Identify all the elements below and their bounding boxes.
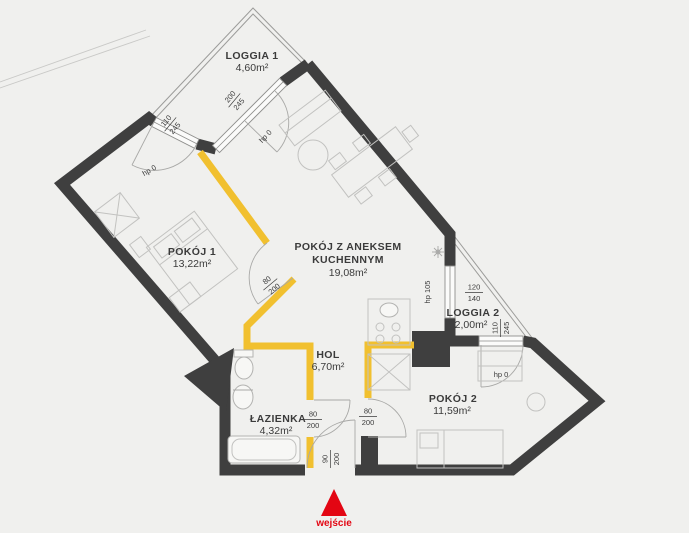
svg-text:80: 80 bbox=[309, 410, 317, 419]
floor-plan: LOGGIA 1 4,60m² POKÓJ 1 13,22m² POKÓJ Z … bbox=[0, 0, 689, 533]
bathroom-fixtures bbox=[228, 350, 300, 463]
svg-text:200: 200 bbox=[307, 421, 320, 430]
svg-text:LOGGIA 1: LOGGIA 1 bbox=[226, 50, 279, 62]
kitchen-counter bbox=[368, 299, 410, 345]
svg-text:200: 200 bbox=[362, 418, 375, 427]
svg-text:hp 105: hp 105 bbox=[423, 281, 432, 304]
dim-pokoj2-balcony-door-sill: hp 0 bbox=[494, 370, 509, 379]
pokoj2-loggia2-window bbox=[479, 336, 523, 346]
room-label-salon: POKÓJ Z ANEKSEM KUCHENNYM 19,08m² bbox=[294, 240, 401, 279]
svg-text:ŁAZIENKA: ŁAZIENKA bbox=[250, 413, 306, 425]
svg-text:4,60m²: 4,60m² bbox=[236, 62, 269, 74]
svg-text:6,70m²: 6,70m² bbox=[312, 361, 345, 373]
svg-text:80: 80 bbox=[364, 407, 372, 416]
dim-loggia1-window: 200 245 bbox=[221, 87, 248, 114]
entrance-arrow-icon bbox=[321, 489, 347, 516]
svg-text:POKÓJ 1: POKÓJ 1 bbox=[168, 245, 216, 258]
dim-pokoj2-door: 80 200 bbox=[359, 407, 377, 428]
svg-text:13,22m²: 13,22m² bbox=[173, 258, 212, 270]
svg-text:11,59m²: 11,59m² bbox=[433, 405, 471, 417]
room-label-pokoj1: POKÓJ 1 13,22m² bbox=[168, 245, 216, 270]
chimney-block bbox=[412, 331, 450, 367]
kitchen-sink bbox=[380, 303, 398, 317]
bathtub bbox=[228, 436, 300, 463]
svg-text:LOGGIA 2: LOGGIA 2 bbox=[447, 307, 500, 319]
pokoj2-bed bbox=[417, 430, 503, 468]
toilet bbox=[234, 350, 253, 379]
dim-kitchen-window-sill: hp 105 bbox=[423, 281, 432, 304]
room-label-lazienka: ŁAZIENKA 4,32m² bbox=[250, 413, 306, 437]
svg-text:KUCHENNYM: KUCHENNYM bbox=[312, 254, 384, 266]
dim-pokoj2-balcony-door: 110 245 bbox=[491, 319, 512, 337]
dim-pokoj1-balcony-door-sill: hp 0 bbox=[141, 163, 158, 178]
loggia1-window bbox=[212, 78, 286, 152]
salon-sofa bbox=[279, 90, 341, 146]
loggia1-railing bbox=[149, 8, 308, 122]
vent-symbol bbox=[432, 246, 444, 258]
svg-text:110: 110 bbox=[491, 322, 500, 334]
floor-plan-drawing: LOGGIA 1 4,60m² POKÓJ 1 13,22m² POKÓJ Z … bbox=[0, 0, 689, 533]
svg-text:200: 200 bbox=[332, 453, 341, 466]
pokoj2-table bbox=[527, 393, 545, 411]
hall-wardrobe bbox=[368, 354, 410, 390]
wall-below-pokoj2-door bbox=[361, 436, 378, 472]
svg-text:hp 0: hp 0 bbox=[494, 370, 509, 379]
dim-kitchen-window: 120 140 bbox=[465, 283, 483, 304]
svg-text:19,08m²: 19,08m² bbox=[329, 267, 368, 279]
svg-text:hp 0: hp 0 bbox=[257, 128, 274, 145]
room-label-pokoj2: POKÓJ 2 11,59m² bbox=[429, 392, 477, 417]
washbasin bbox=[233, 385, 253, 409]
neighbor-railing-lines bbox=[0, 30, 150, 88]
dim-entrance-door: 90 200 bbox=[321, 450, 342, 468]
svg-text:4,32m²: 4,32m² bbox=[260, 425, 293, 437]
partition-wall-pokoj1 bbox=[200, 152, 267, 243]
svg-text:POKÓJ 2: POKÓJ 2 bbox=[429, 392, 477, 405]
salon-rug bbox=[298, 140, 328, 170]
partition-wall-bathroom bbox=[247, 279, 310, 400]
svg-text:90: 90 bbox=[321, 455, 330, 463]
svg-text:120: 120 bbox=[468, 283, 481, 292]
svg-text:140: 140 bbox=[468, 294, 481, 303]
room-label-loggia1: LOGGIA 1 4,60m² bbox=[226, 50, 279, 74]
entrance-marker: wejście bbox=[315, 489, 352, 529]
kitchen-stove bbox=[376, 323, 400, 343]
svg-text:2,00m²: 2,00m² bbox=[455, 319, 488, 331]
svg-text:POKÓJ Z ANEKSEM: POKÓJ Z ANEKSEM bbox=[294, 240, 401, 253]
svg-text:245: 245 bbox=[502, 322, 511, 335]
entrance-label: wejście bbox=[315, 518, 352, 529]
svg-text:HOL: HOL bbox=[316, 349, 340, 361]
svg-text:hp 0: hp 0 bbox=[141, 163, 158, 178]
room-label-hol: HOL 6,70m² bbox=[312, 349, 345, 373]
lazienka-door-swing bbox=[314, 400, 350, 437]
dim-loggia1-window-sill: hp 0 bbox=[257, 128, 274, 145]
dim-lazienka-door: 80 200 bbox=[304, 410, 322, 431]
